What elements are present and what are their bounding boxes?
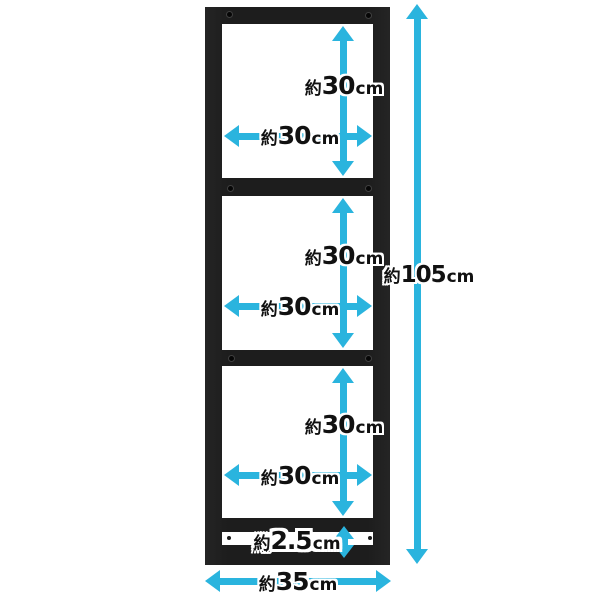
label-section3-height: 約30cm [305, 412, 384, 437]
dimension-unit: cm [312, 300, 340, 320]
screw-hole-icon [228, 186, 233, 191]
screw-hole-icon [366, 13, 371, 18]
label-section3-width: 約30cm [261, 463, 340, 488]
approx-prefix: 約 [305, 249, 322, 269]
dimension-unit: cm [310, 575, 338, 595]
dimension-unit: cm [313, 534, 341, 554]
arrow-head-right-icon [357, 125, 372, 147]
approx-prefix: 約 [305, 418, 322, 438]
approx-prefix: 約 [253, 534, 270, 554]
screw-hole-icon [368, 536, 372, 540]
arrow-head-down-icon [406, 549, 428, 564]
dimension-value: 30 [322, 71, 355, 100]
approx-prefix: 約 [261, 129, 278, 149]
dimension-value: 2.5 [270, 526, 311, 555]
arrow-section3-height [332, 368, 354, 516]
screw-hole-icon [366, 356, 371, 361]
screw-hole-icon [366, 186, 371, 191]
screw-hole-icon [227, 12, 232, 17]
dimension-unit: cm [312, 469, 340, 489]
approx-prefix: 約 [261, 300, 278, 320]
arrow-head-down-icon [332, 501, 354, 516]
approx-prefix: 約 [305, 79, 322, 99]
arrow-line [340, 210, 347, 336]
label-total-width: 約35cm [259, 569, 338, 594]
dimension-value: 30 [278, 121, 311, 150]
arrow-head-right-icon [376, 570, 391, 592]
dimension-diagram: 約30cm 約30cm 約30cm 約30cm 約105cm 約30cm 約30… [0, 0, 600, 600]
label-bottom-rail-gap: 約2.5cm [253, 528, 340, 553]
arrow-head-down-icon [332, 333, 354, 348]
dimension-unit: cm [447, 267, 475, 287]
arrow-head-down-icon [332, 161, 354, 176]
dimension-value: 35 [276, 567, 309, 596]
dimension-unit: cm [312, 129, 340, 149]
dimension-value: 30 [278, 461, 311, 490]
arrow-section1-height [332, 26, 354, 176]
label-total-height: 約105cm [384, 264, 475, 287]
screw-hole-icon [227, 536, 231, 540]
arrow-head-right-icon [357, 464, 372, 486]
label-section1-width: 約30cm [261, 123, 340, 148]
dimension-unit: cm [356, 249, 384, 269]
approx-prefix: 約 [259, 575, 276, 595]
dimension-unit: cm [356, 418, 384, 438]
arrow-section2-height [332, 198, 354, 348]
approx-prefix: 約 [384, 267, 401, 287]
label-section1-height: 約30cm [305, 73, 384, 98]
dimension-unit: cm [356, 79, 384, 99]
arrow-head-right-icon [357, 295, 372, 317]
dimension-value: 30 [278, 292, 311, 321]
dimension-value: 30 [322, 241, 355, 270]
dimension-value: 105 [401, 262, 446, 288]
screw-hole-icon [229, 356, 234, 361]
dimension-value: 30 [322, 410, 355, 439]
label-section2-height: 約30cm [305, 243, 384, 268]
label-section2-width: 約30cm [261, 294, 340, 319]
approx-prefix: 約 [261, 469, 278, 489]
